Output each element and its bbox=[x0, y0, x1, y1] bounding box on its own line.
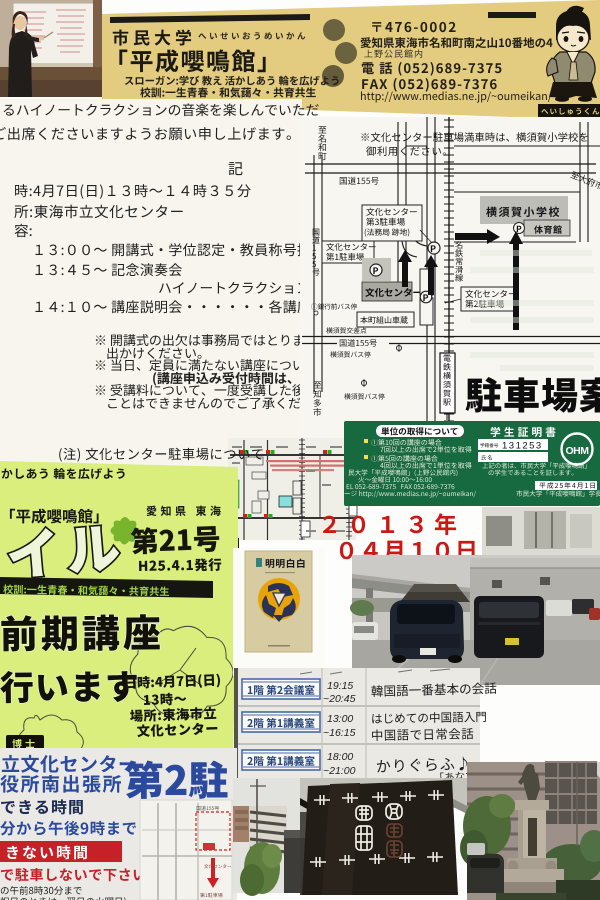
svg-text:~20:45: ~20:45 bbox=[323, 693, 356, 705]
svg-text:13:00: 13:00 bbox=[327, 713, 353, 725]
svg-text:~21:00: ~21:00 bbox=[323, 765, 356, 777]
svg-text:~16:15: ~16:15 bbox=[323, 727, 356, 739]
svg-text:18:00: 18:00 bbox=[327, 751, 353, 763]
svg-text:19:15: 19:15 bbox=[327, 680, 353, 692]
svg-text:131253: 131253 bbox=[502, 441, 543, 452]
svg-text:OHM: OHM bbox=[566, 445, 590, 457]
